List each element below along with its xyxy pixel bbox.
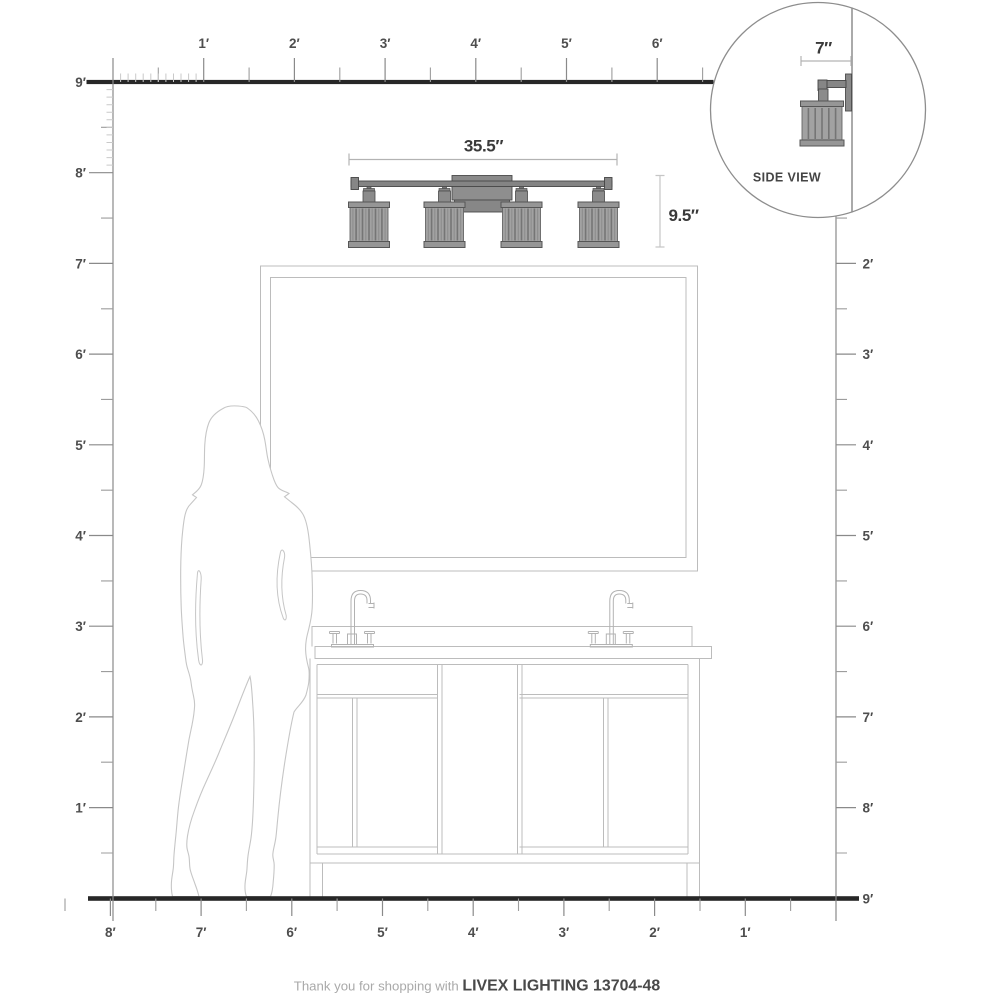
- svg-text:8′: 8′: [75, 166, 86, 181]
- svg-text:1′: 1′: [198, 36, 209, 51]
- svg-text:7′: 7′: [196, 925, 207, 940]
- svg-text:SIDE VIEW: SIDE VIEW: [753, 171, 821, 185]
- svg-text:7′: 7′: [75, 256, 86, 271]
- svg-text:5′: 5′: [561, 36, 572, 51]
- svg-text:9′: 9′: [75, 75, 86, 90]
- svg-text:5′: 5′: [75, 438, 86, 453]
- svg-text:6′: 6′: [75, 347, 86, 362]
- svg-text:8′: 8′: [863, 801, 874, 816]
- svg-text:7″: 7″: [815, 39, 832, 58]
- svg-text:6′: 6′: [863, 619, 874, 634]
- svg-text:8′: 8′: [105, 925, 116, 940]
- svg-text:1′: 1′: [75, 801, 86, 816]
- svg-text:9′: 9′: [863, 891, 874, 906]
- svg-text:6′: 6′: [286, 925, 297, 940]
- svg-text:2′: 2′: [289, 36, 300, 51]
- svg-text:5′: 5′: [863, 529, 874, 544]
- svg-text:4′: 4′: [468, 925, 479, 940]
- svg-text:2′: 2′: [863, 256, 874, 271]
- svg-text:1′: 1′: [740, 925, 751, 940]
- svg-text:7′: 7′: [863, 710, 874, 725]
- svg-text:2′: 2′: [649, 925, 660, 940]
- svg-text:5′: 5′: [377, 925, 388, 940]
- svg-text:4′: 4′: [75, 529, 86, 544]
- svg-text:9.5″: 9.5″: [669, 206, 699, 225]
- svg-text:3′: 3′: [863, 347, 874, 362]
- svg-text:4′: 4′: [470, 36, 481, 51]
- svg-text:2′: 2′: [75, 710, 86, 725]
- svg-text:Thank you for shopping with LI: Thank you for shopping with LIVEX LIGHTI…: [294, 978, 661, 995]
- svg-text:4′: 4′: [863, 438, 874, 453]
- svg-text:6′: 6′: [652, 36, 663, 51]
- svg-text:35.5″: 35.5″: [464, 137, 503, 156]
- svg-text:3′: 3′: [559, 925, 570, 940]
- svg-text:3′: 3′: [380, 36, 391, 51]
- svg-text:3′: 3′: [75, 619, 86, 634]
